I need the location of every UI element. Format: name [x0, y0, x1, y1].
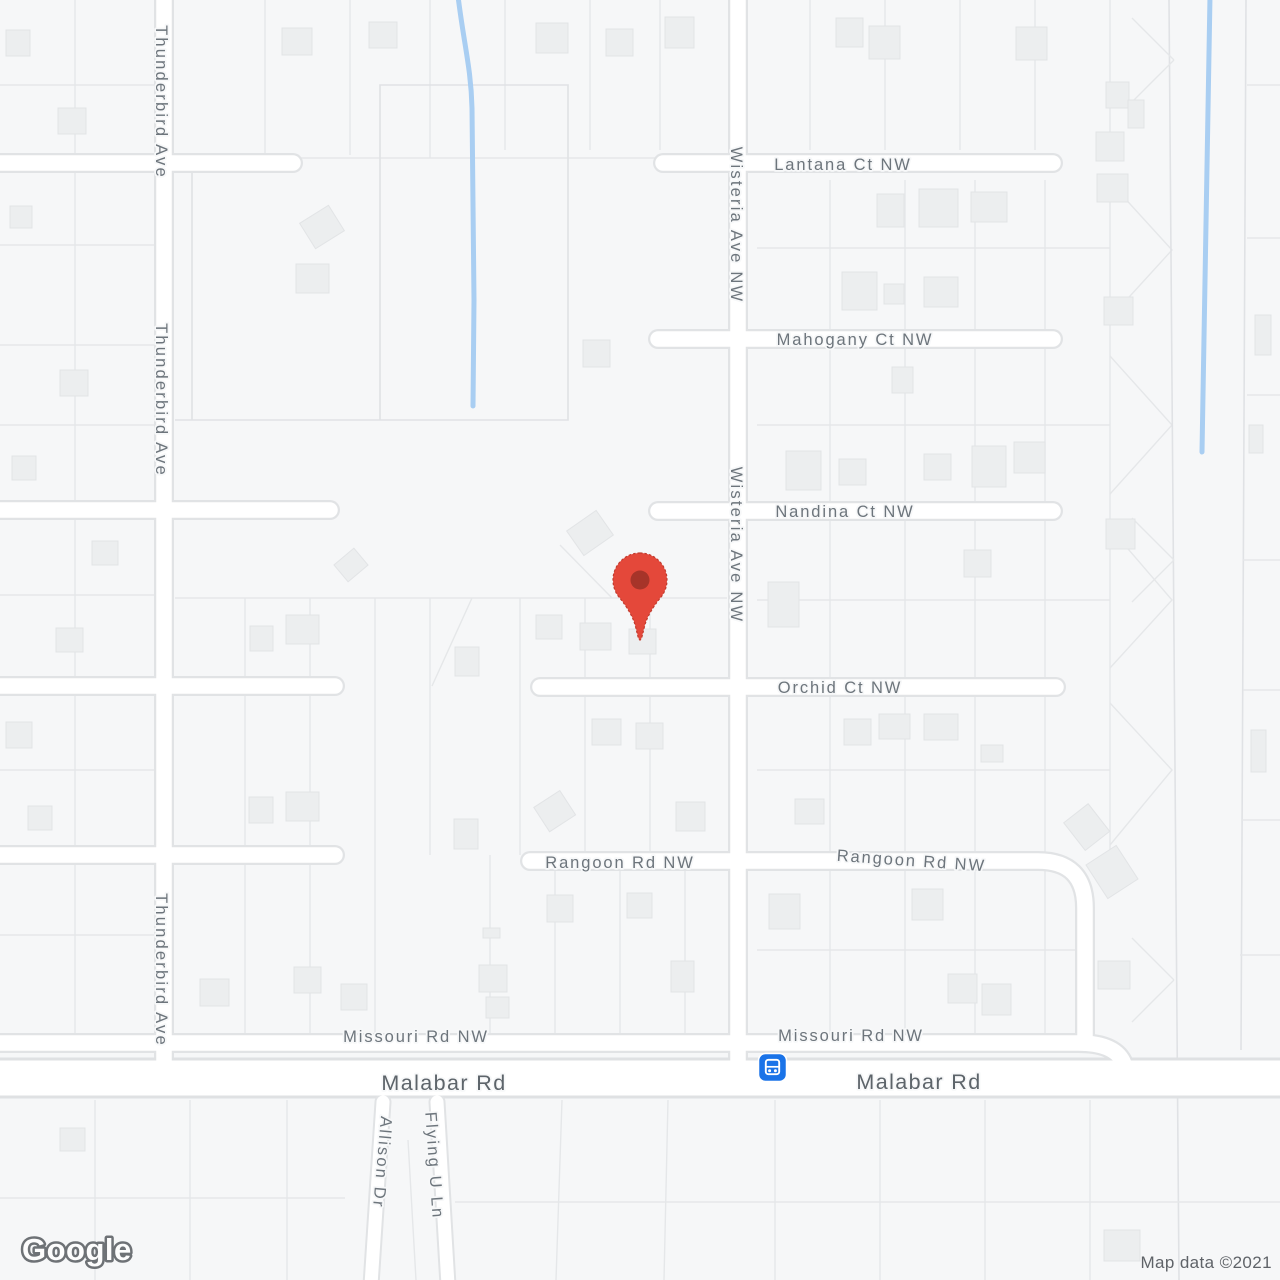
street-label-malabar-west: Malabar Rd	[381, 1071, 506, 1095]
map-attribution: Map data ©2021	[1140, 1253, 1272, 1272]
street-label-wisteria-south: Wisteria Ave NW	[727, 467, 745, 623]
street-label-thunderbird-south: Thunderbird Ave	[152, 893, 170, 1047]
map-canvas[interactable]: Lantana Ct NW Mahogany Ct NW Nandina Ct …	[0, 0, 1280, 1280]
street-label-thunderbird-north: Thunderbird Ave	[152, 25, 170, 179]
street-label-missouri-east: Missouri Rd NW	[778, 1027, 924, 1045]
street-label-nandina: Nandina Ct NW	[775, 503, 914, 521]
street-label-missouri-west: Missouri Rd NW	[343, 1028, 489, 1046]
street-label-rangoon-west: Rangoon Rd NW	[545, 854, 694, 872]
street-label-orchid: Orchid Ct NW	[778, 679, 903, 697]
google-watermark[interactable]: Google	[22, 1232, 132, 1267]
street-label-lantana: Lantana Ct NW	[774, 156, 912, 174]
bus-stop-icon[interactable]	[759, 1054, 787, 1082]
street-label-mahogany: Mahogany Ct NW	[777, 331, 934, 349]
street-label-malabar-east: Malabar Rd	[856, 1070, 981, 1094]
street-label-wisteria-north: Wisteria Ave NW	[727, 147, 745, 303]
street-label-thunderbird-mid: Thunderbird Ave	[152, 323, 170, 477]
